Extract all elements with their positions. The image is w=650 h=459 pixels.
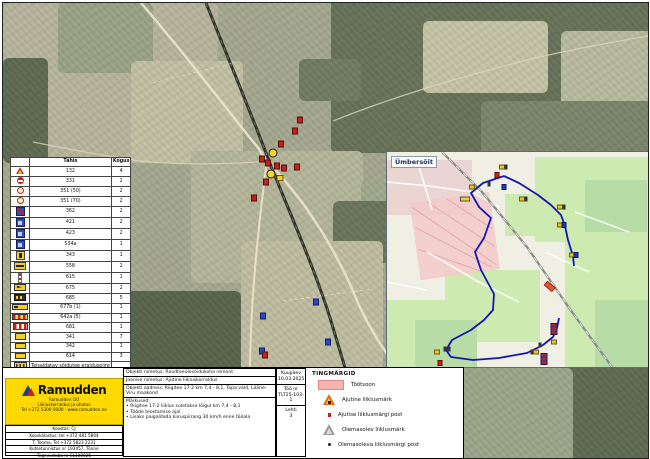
ic-ysmall (15, 353, 26, 360)
tic-zone (318, 380, 344, 390)
legend-row: 1324 (11, 167, 131, 177)
traffic-sign-marker (281, 165, 287, 172)
ic-post (18, 273, 23, 283)
legend-row: 351 (50)2 (11, 187, 131, 197)
sheet-count-value: 3 (278, 414, 304, 419)
ic-wide (12, 304, 28, 310)
ic-ytable (14, 262, 26, 270)
work-number-cell: Töö nr TLT25-103-1 (277, 385, 305, 406)
inset-sign-marker (551, 340, 557, 345)
drawing-number-box: Kuupäev 10.03.2025 Töö nr TLT25-103-1 Le… (276, 368, 306, 457)
ic-ysmall (15, 343, 26, 350)
inset-sign-marker (505, 165, 508, 170)
ic-blue (16, 218, 25, 227)
legend-header-symbol: Tähis (30, 158, 112, 167)
ic-ysmall (15, 333, 26, 340)
legend-header-icon (11, 158, 30, 167)
inset-sign-marker (434, 350, 440, 355)
symbol-legend-items: TöötsoonAjutine liiklusmärkAjutise liikl… (308, 380, 460, 449)
date-cell: Kuupäev 10.03.2025 (277, 369, 305, 385)
symbol-legend-item: Ajutise liiklusmärgi post (318, 410, 460, 419)
ic-blue (16, 229, 25, 238)
inset-sign-marker (488, 182, 491, 187)
ic-tri (16, 167, 24, 174)
traffic-sign-marker (325, 339, 331, 346)
detour-inset-map[interactable]: Ümbersõit (386, 151, 649, 368)
ramudden-wordmark: Ramudden (38, 383, 106, 397)
traffic-sign-marker (260, 313, 266, 320)
legend-row: 677b (1)1 (11, 304, 131, 314)
ic-s50 (17, 187, 24, 194)
traffic-sign-marker (251, 195, 257, 202)
traffic-sign-marker (277, 175, 284, 181)
symbol-legend-item: Olemasolev liiklusmärk (318, 425, 460, 434)
legend-row: 351 (70)2 (11, 197, 131, 207)
legend-row: 4232 (11, 229, 131, 240)
title-block: Ramudden Ramudden OÜ Liikluskorraldus ja… (2, 367, 464, 459)
contact-row: Kooskõlastus: tel +372 481 5804 (6, 432, 122, 439)
object-name: Objekti nimetus: Raudteeülesõidukoha rem… (124, 369, 275, 377)
traffic-sign-marker (297, 117, 303, 124)
ic-fence (13, 323, 28, 330)
inset-sign-marker (438, 360, 443, 366)
contact-info-box: Koostas: CJKooskõlastus: tel +372 481 58… (5, 425, 123, 456)
ramudden-logo-box: Ramudden Ramudden OÜ Liikluskorraldus ja… (5, 378, 123, 425)
symbol-legend-item: Olemasoleva liiklusmärgi post (318, 440, 460, 449)
date-value: 10.03.2025 (278, 377, 304, 382)
traffic-sign-marker (292, 128, 298, 135)
inset-sign-marker (539, 343, 542, 348)
sheet-count-cell: Lehti 3 (277, 406, 305, 421)
legend-row: 6855 (11, 294, 131, 304)
inset-sign-marker (563, 205, 566, 210)
detour-label: Ümbersõit (391, 156, 437, 168)
tic-warn (323, 394, 335, 405)
traffic-sign-marker (278, 141, 284, 148)
traffic-sign-marker (313, 299, 319, 306)
object-address: Objekti aadress: Riigitee 17-2 km 7,4 - … (124, 385, 275, 398)
legend-row: 3421 (11, 342, 131, 352)
drawing-description-box: Objekti nimetus: Raudteeülesõidukoha rem… (123, 368, 276, 457)
inset-sign-marker (525, 197, 528, 202)
ic-bluered (16, 207, 25, 216)
legend-row: 5582 (11, 262, 131, 273)
legend-row: 534a1 (11, 240, 131, 251)
legend-row: 3417 (11, 333, 131, 343)
note-line: Lisaks paigaldada kiiruspiirang 30 km/h … (126, 415, 273, 421)
legend-row: 6151 (11, 272, 131, 284)
map-symbol-legend: TINGMÄRGID TöötsoonAjutine liiklusmärkAj… (308, 369, 460, 456)
inset-sign-marker (562, 222, 567, 228)
ic-s70 (17, 197, 24, 204)
inset-sign-marker (533, 350, 539, 355)
inset-sign-marker (541, 353, 548, 365)
ic-dark (14, 294, 26, 301)
traffic-sign-marker (263, 179, 269, 186)
contact-row: Kutsetunnistus nr 193457, Tõnne (6, 445, 122, 452)
ic-yplate (16, 251, 25, 260)
contact-row: Tegevusluba nr EL100025 (6, 452, 122, 459)
legend-row: 642a (5)1 (11, 313, 131, 323)
symbol-legend-title: TINGMÄRGID (312, 371, 460, 377)
ramudden-sub-line: Tel +372 5300 0000 · www.ramudden.ee (6, 407, 122, 412)
tic-dotr (328, 413, 331, 417)
inset-sign-marker (444, 347, 447, 352)
traffic-sign-marker (262, 352, 268, 359)
legend-row: 3622 (11, 207, 131, 218)
tic-warng (323, 424, 335, 435)
notes-list: Riigitee 17-2 liiklus suletakse lõigul k… (126, 404, 273, 421)
traffic-sign-marker (265, 160, 271, 167)
symbol-legend-item: Ajutine liiklusmärk (318, 395, 460, 404)
inset-sign-marker (448, 347, 451, 352)
inset-sign-marker (502, 184, 507, 190)
legend-row: 6811 (11, 323, 131, 333)
tic-dotk (328, 443, 331, 446)
inset-sign-marker (469, 185, 475, 190)
inset-sign-marker (574, 252, 579, 258)
traffic-sign-marker (269, 149, 278, 158)
ic-arrow (14, 284, 26, 291)
legend-header-qty: Kogus (111, 158, 131, 167)
ta-plan-sheet: Ümbersõit Tähis Kogus 13243312351 (50)23… (0, 0, 650, 459)
symbol-legend-item: Töötsoon (318, 380, 460, 389)
legend-row: 6143 (11, 352, 131, 362)
ramudden-logo-icon (22, 385, 35, 396)
legend-row: 3431 (11, 251, 131, 262)
legend-row: 6752 (11, 284, 131, 294)
traffic-sign-marker (274, 163, 280, 170)
drawing-name: Joonise nimetus: Ajutine liikluskorraldu… (124, 377, 275, 385)
inset-sign-marker (495, 172, 500, 178)
traffic-sign-marker (267, 170, 276, 179)
legend-row: 4212 (11, 218, 131, 229)
work-number-value: TLT25-103-1 (278, 393, 304, 403)
contact-row: T. Toome, Tel +372 5823 2231 (6, 439, 122, 446)
inset-linework (387, 152, 649, 367)
ic-striped (12, 314, 28, 320)
traffic-sign-marker (294, 164, 300, 171)
ic-noentry (17, 177, 24, 184)
inset-sign-marker (460, 197, 470, 202)
ic-blue (16, 240, 25, 249)
inset-sign-marker (551, 323, 558, 335)
legend-row: 3312 (11, 177, 131, 187)
